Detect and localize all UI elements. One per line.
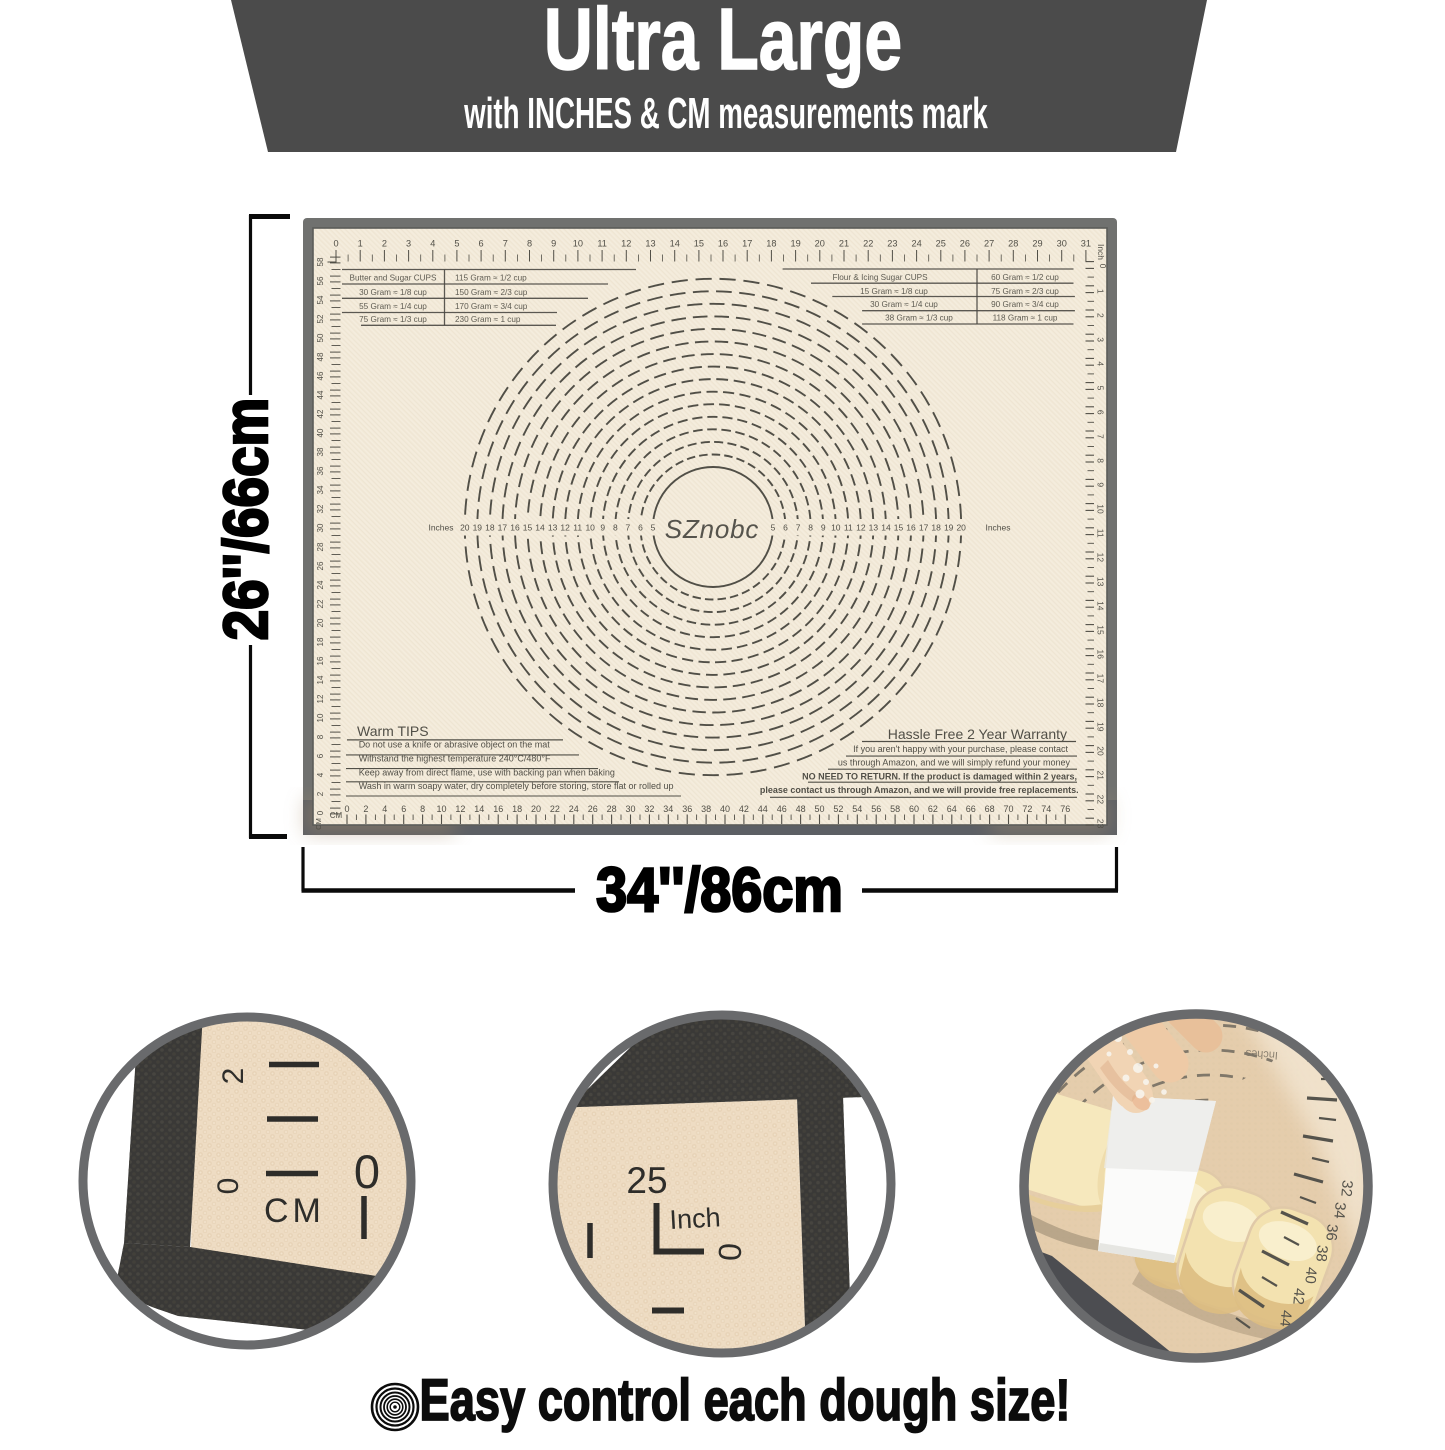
svg-text:0: 0 [333,239,338,249]
svg-text:115 Gram ≈ 1/2 cup: 115 Gram ≈ 1/2 cup [455,274,527,283]
svg-text:54: 54 [316,295,325,304]
svg-text:36: 36 [682,804,692,814]
svg-text:2: 2 [217,1068,250,1085]
svg-text:38: 38 [316,447,325,456]
svg-text:0: 0 [344,804,349,814]
svg-text:10: 10 [585,523,595,533]
svg-text:0: 0 [354,1145,380,1198]
svg-text:48: 48 [316,352,325,361]
svg-text:20: 20 [1096,746,1106,756]
svg-text:28: 28 [1008,239,1018,249]
svg-text:5: 5 [1096,386,1106,391]
svg-text:3: 3 [1096,337,1106,342]
svg-text:7: 7 [503,239,508,249]
svg-text:8: 8 [420,804,425,814]
svg-text:6: 6 [479,239,484,249]
svg-text:10: 10 [316,713,325,722]
svg-text:15: 15 [694,239,704,249]
svg-text:NO NEED TO RETURN. If the prod: NO NEED TO RETURN. If the product is dam… [802,772,1077,782]
svg-text:52: 52 [316,314,325,323]
svg-text:8: 8 [1096,458,1106,463]
svg-text:15: 15 [894,523,904,533]
svg-text:8: 8 [613,523,618,533]
svg-text:46: 46 [316,371,325,380]
svg-text:20: 20 [531,804,541,814]
svg-text:21: 21 [839,239,849,249]
svg-text:26: 26 [960,239,970,249]
svg-text:54: 54 [852,804,862,814]
svg-text:14: 14 [670,239,680,249]
svg-text:2: 2 [1096,313,1106,318]
svg-text:38: 38 [1312,1244,1330,1262]
svg-text:4: 4 [382,804,387,814]
svg-text:Ultra Large: Ultra Large [544,0,902,88]
svg-text:Inches: Inches [985,523,1010,533]
svg-text:62: 62 [928,804,938,814]
svg-text:14: 14 [1096,601,1106,611]
svg-text:12: 12 [1096,553,1106,563]
svg-text:64: 64 [947,804,957,814]
svg-text:8: 8 [808,523,813,533]
svg-text:30 Gram ≈ 1/8 cup: 30 Gram ≈ 1/8 cup [359,288,427,297]
svg-text:10: 10 [436,804,446,814]
svg-text:34: 34 [663,804,673,814]
svg-text:0: 0 [1098,264,1108,269]
svg-text:Inch: Inch [1096,244,1106,260]
svg-text:18: 18 [766,239,776,249]
svg-text:18: 18 [316,637,325,646]
svg-text:0: 0 [712,1242,749,1261]
svg-text:20: 20 [460,523,470,533]
svg-text:20: 20 [956,523,966,533]
svg-text:34: 34 [1330,1201,1348,1219]
svg-text:4: 4 [316,772,325,777]
svg-text:72: 72 [1022,804,1032,814]
svg-text:13: 13 [869,523,879,533]
svg-text:30: 30 [625,804,635,814]
svg-text:40: 40 [1301,1266,1319,1284]
svg-text:50: 50 [814,804,824,814]
svg-text:9: 9 [821,523,826,533]
svg-text:23: 23 [1096,819,1106,829]
svg-text:11: 11 [597,239,607,249]
svg-text:Flour & Icing Sugar CUPS: Flour & Icing Sugar CUPS [832,273,928,282]
svg-text:32: 32 [1337,1179,1355,1197]
svg-text:30: 30 [316,523,325,532]
svg-text:56: 56 [316,276,325,285]
svg-text:7: 7 [626,523,631,533]
svg-text:us through Amazon, and we wil: us through Amazon, and we will simply re… [838,758,1071,768]
svg-text:36: 36 [1322,1223,1340,1241]
svg-text:6: 6 [783,523,788,533]
svg-text:74: 74 [1041,804,1051,814]
svg-text:22: 22 [550,804,560,814]
svg-text:16: 16 [906,523,916,533]
svg-text:22: 22 [1096,795,1106,805]
svg-text:19: 19 [1096,722,1106,732]
svg-text:If you aren't happy with your: If you aren't happy with your purchase, … [853,744,1068,754]
svg-text:Wash in warm soapy water, dry: Wash in warm soapy water, dry completely… [359,781,674,791]
svg-text:70: 70 [1003,804,1013,814]
svg-text:29: 29 [1032,239,1042,249]
svg-text:22: 22 [316,599,325,608]
svg-text:6: 6 [638,523,643,533]
svg-text:150 Gram ≈ 2/3 cup: 150 Gram ≈ 2/3 cup [455,288,528,297]
svg-text:15: 15 [1096,625,1106,635]
svg-text:31: 31 [1081,239,1091,249]
svg-text:5: 5 [651,523,656,533]
svg-text:23: 23 [887,239,897,249]
svg-text:16: 16 [718,239,728,249]
svg-text:Inch: Inch [669,1202,722,1235]
svg-text:75 Gram ≈ 1/3 cup: 75 Gram ≈ 1/3 cup [359,315,427,324]
svg-text:48: 48 [796,804,806,814]
svg-text:Warm TIPS: Warm TIPS [357,723,429,739]
svg-text:34: 34 [316,485,325,494]
svg-text:6: 6 [401,804,406,814]
svg-text:17: 17 [742,239,752,249]
svg-text:68: 68 [985,804,995,814]
svg-text:20: 20 [316,618,325,627]
svg-text:20: 20 [815,239,825,249]
svg-text:4: 4 [1096,361,1106,366]
svg-text:CM: CM [264,1192,325,1230]
svg-text:75 Gram ≈ 2/3 cup: 75 Gram ≈ 2/3 cup [991,287,1059,296]
svg-text:58: 58 [890,804,900,814]
svg-text:0: 0 [212,1178,245,1195]
svg-text:4: 4 [430,239,435,249]
svg-text:28: 28 [607,804,617,814]
svg-text:40: 40 [316,428,325,437]
svg-text:Do not use a knife or abrasive: Do not use a knife or abrasive object on… [359,740,551,750]
svg-text:19: 19 [790,239,800,249]
svg-text:42: 42 [316,409,325,418]
svg-text:12: 12 [621,239,631,249]
svg-text:19: 19 [944,523,954,533]
svg-text:25: 25 [936,239,946,249]
svg-text:42: 42 [739,804,749,814]
svg-text:10: 10 [831,523,841,533]
svg-text:30 Gram ≈ 1/4 cup: 30 Gram ≈ 1/4 cup [870,300,938,309]
svg-text:7: 7 [1096,434,1106,439]
svg-text:6: 6 [316,753,325,758]
svg-text:5: 5 [454,239,459,249]
svg-text:13: 13 [548,523,558,533]
svg-text:16: 16 [316,656,325,665]
svg-text:3: 3 [406,239,411,249]
svg-text:34''/86cm: 34''/86cm [596,856,843,924]
svg-text:66: 66 [966,804,976,814]
svg-text:16: 16 [1096,649,1106,659]
svg-text:40: 40 [720,804,730,814]
svg-text:1: 1 [1096,289,1106,294]
svg-text:27: 27 [984,239,994,249]
svg-text:11: 11 [573,523,582,533]
svg-text:2: 2 [363,804,368,814]
svg-text:32: 32 [316,504,325,513]
svg-text:12: 12 [560,523,570,533]
svg-text:11: 11 [844,523,853,533]
svg-text:Butter and Sugar CUPS: Butter and Sugar CUPS [350,274,437,283]
svg-text:60 Gram ≈ 1/2 cup: 60 Gram ≈ 1/2 cup [991,273,1059,282]
svg-text:18: 18 [485,523,495,533]
svg-text:24: 24 [569,804,579,814]
svg-text:5: 5 [771,523,776,533]
svg-text:19: 19 [473,523,483,533]
svg-text:15: 15 [523,523,533,533]
svg-text:55 Gram ≈ 1/4 cup: 55 Gram ≈ 1/4 cup [359,302,427,311]
svg-text:please contact us through Amaz: please contact us through Amazon, and we… [760,785,1079,795]
svg-text:CM: CM [314,818,323,830]
svg-text:2: 2 [316,791,325,796]
svg-text:7: 7 [796,523,801,533]
svg-text:1: 1 [358,239,363,249]
svg-text:32: 32 [644,804,654,814]
svg-text:25: 25 [626,1160,667,1201]
svg-text:13: 13 [645,239,655,249]
svg-text:8: 8 [527,239,532,249]
svg-text:0: 0 [316,810,325,815]
svg-text:21: 21 [1096,770,1106,780]
svg-text:12: 12 [316,694,325,703]
svg-text:118 Gram ≈ 1 cup: 118 Gram ≈ 1 cup [993,314,1058,323]
svg-text:10: 10 [1096,504,1106,514]
svg-text:14: 14 [316,675,325,684]
svg-text:Inches: Inches [1245,1047,1279,1061]
svg-text:60: 60 [909,804,919,814]
svg-text:with INCHES & CM measurements: with INCHES & CM measurements mark [463,89,988,138]
svg-text:90 Gram ≈ 3/4 cup: 90 Gram ≈ 3/4 cup [991,300,1059,309]
svg-text:26: 26 [316,561,325,570]
svg-text:8: 8 [316,734,325,739]
svg-text:26''/66cm: 26''/66cm [212,398,281,641]
svg-text:26: 26 [588,804,598,814]
svg-text:10: 10 [573,239,583,249]
svg-text:9: 9 [551,239,556,249]
svg-text:24: 24 [911,239,921,249]
svg-text:Easy control each dough size!: Easy control each dough size! [420,1369,1071,1434]
svg-text:18: 18 [512,804,522,814]
svg-text:42: 42 [1289,1287,1307,1305]
svg-text:36: 36 [316,466,325,475]
svg-text:18: 18 [1096,698,1106,708]
svg-text:9: 9 [600,523,605,533]
svg-text:Withstand the highest tempe: Withstand the highest temperature 240°C/… [359,754,551,764]
svg-text:44: 44 [316,390,325,399]
svg-text:56: 56 [871,804,881,814]
svg-text:SZnobc: SZnobc [665,514,759,544]
svg-text:17: 17 [498,523,508,533]
svg-text:9: 9 [1096,482,1106,487]
svg-text:46: 46 [777,804,787,814]
svg-text:38: 38 [701,804,711,814]
svg-text:12: 12 [856,523,866,533]
svg-text:Keep away from direct flame, u: Keep away from direct flame, use with ba… [359,767,615,777]
svg-text:12: 12 [455,804,465,814]
svg-text:Hassle Free 2 Year Warranty: Hassle Free 2 Year Warranty [888,726,1067,742]
svg-text:13: 13 [1096,577,1106,587]
svg-text:Inches: Inches [428,523,453,533]
svg-text:38 Gram ≈ 1/3 cup: 38 Gram ≈ 1/3 cup [885,314,953,323]
svg-text:230 Gram ≈ 1 cup: 230 Gram ≈ 1 cup [455,315,521,324]
svg-text:76: 76 [1060,804,1070,814]
svg-text:16: 16 [510,523,520,533]
svg-text:15 Gram ≈ 1/8 cup: 15 Gram ≈ 1/8 cup [860,287,928,296]
svg-text:44: 44 [758,804,768,814]
svg-text:CM: CM [330,811,343,820]
svg-text:14: 14 [535,523,545,533]
svg-text:17: 17 [919,523,929,533]
svg-text:58: 58 [316,257,325,266]
svg-text:2: 2 [382,239,387,249]
svg-text:50: 50 [316,333,325,342]
svg-text:30: 30 [1057,239,1067,249]
svg-text:11: 11 [1096,529,1106,538]
svg-text:14: 14 [881,523,891,533]
svg-text:22: 22 [863,239,873,249]
svg-text:52: 52 [833,804,843,814]
svg-text:18: 18 [931,523,941,533]
svg-text:14: 14 [474,804,484,814]
svg-text:6: 6 [1096,410,1106,415]
svg-text:24: 24 [316,580,325,589]
svg-text:17: 17 [1096,674,1106,684]
svg-text:28: 28 [316,542,325,551]
svg-text:16: 16 [493,804,503,814]
svg-text:170 Gram ≈ 3/4 cup: 170 Gram ≈ 3/4 cup [455,302,528,311]
